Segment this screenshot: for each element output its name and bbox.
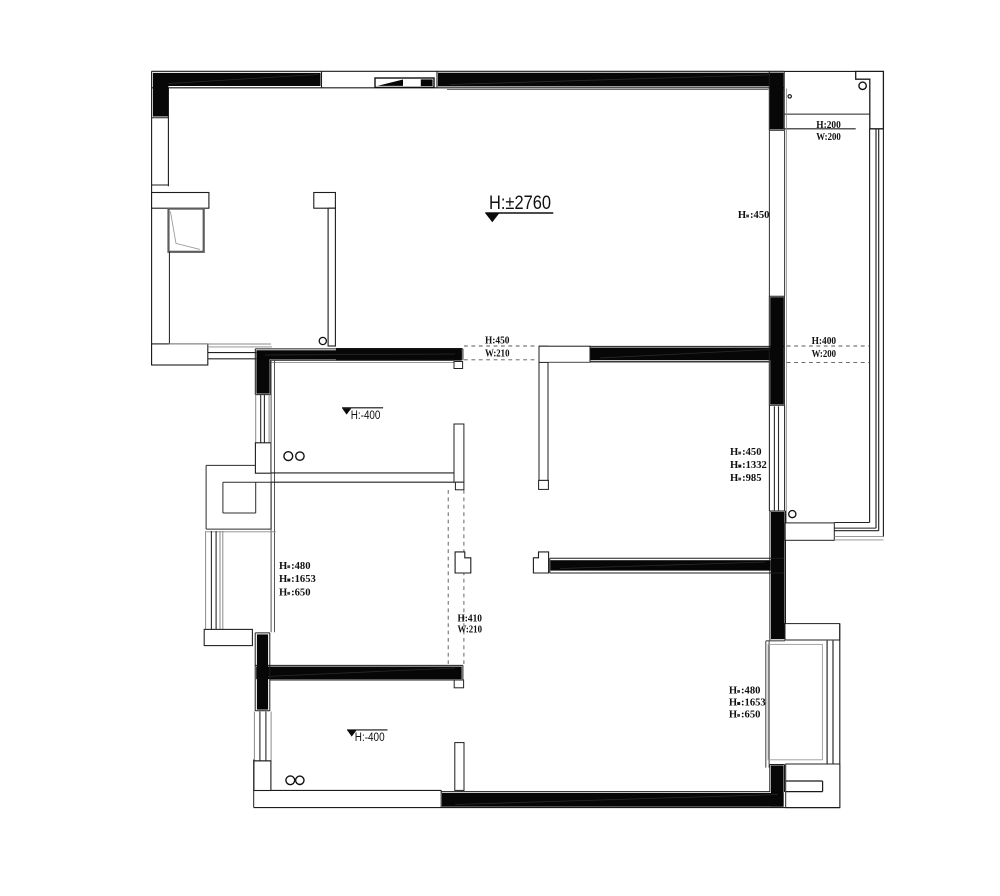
svg-text::1332: :1332 <box>742 460 767 471</box>
svg-text:H: H <box>279 588 288 599</box>
svg-text:H:-400: H:-400 <box>355 730 385 744</box>
svg-text::1653: :1653 <box>291 574 316 585</box>
svg-text:H: H <box>729 686 738 697</box>
svg-text::480: :480 <box>291 561 310 572</box>
svg-text::650: :650 <box>741 710 760 721</box>
svg-text::450: :450 <box>742 447 761 458</box>
svg-text:H: H <box>729 698 738 709</box>
svg-text:H: H <box>730 460 739 471</box>
svg-text::480: :480 <box>741 686 760 697</box>
svg-text::650: :650 <box>291 588 310 599</box>
svg-text:H:-400: H:-400 <box>351 408 381 422</box>
svg-text:W:200: W:200 <box>816 132 841 143</box>
svg-text:H: H <box>279 561 288 572</box>
svg-text:H:±2760: H:±2760 <box>489 193 551 214</box>
svg-text:H: H <box>738 210 747 221</box>
svg-text:W:200: W:200 <box>812 349 837 360</box>
svg-text:W:210: W:210 <box>485 349 510 360</box>
svg-text::1653: :1653 <box>741 698 766 709</box>
svg-text::985: :985 <box>742 473 761 484</box>
svg-text:H:200: H:200 <box>816 120 841 131</box>
svg-text:H: H <box>730 473 739 484</box>
svg-text:H:400: H:400 <box>812 336 837 347</box>
svg-text:H:450: H:450 <box>485 335 510 346</box>
svg-text:H: H <box>730 447 739 458</box>
svg-text::450: :450 <box>750 210 769 221</box>
svg-text:H: H <box>729 710 738 721</box>
svg-text:W:210: W:210 <box>458 625 483 636</box>
svg-text:H:410: H:410 <box>458 614 483 625</box>
svg-text:H: H <box>279 574 288 585</box>
